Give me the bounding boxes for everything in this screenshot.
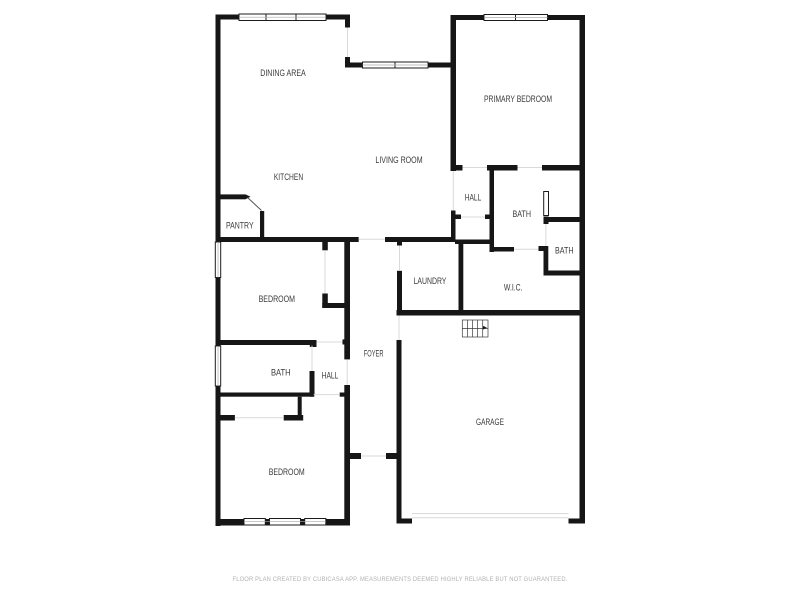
svg-text:LAUNDRY: LAUNDRY [414, 276, 447, 286]
svg-text:BATH: BATH [555, 246, 574, 256]
svg-text:HALL: HALL [465, 192, 482, 202]
svg-text:FLOOR PLAN CREATED BY CUBICASA: FLOOR PLAN CREATED BY CUBICASA APP. MEAS… [233, 576, 568, 583]
svg-text:GARAGE: GARAGE [476, 417, 504, 427]
svg-text:KITCHEN: KITCHEN [274, 172, 303, 182]
svg-text:BATH: BATH [513, 209, 532, 219]
svg-text:FOYER: FOYER [364, 348, 384, 358]
svg-text:PRIMARY BEDROOM: PRIMARY BEDROOM [484, 94, 552, 104]
svg-text:PANTRY: PANTRY [226, 220, 254, 230]
svg-text:BEDROOM: BEDROOM [269, 467, 305, 477]
svg-text:HALL: HALL [322, 370, 339, 380]
svg-text:LIVING ROOM: LIVING ROOM [375, 155, 422, 165]
svg-text:W.I.C.: W.I.C. [504, 282, 523, 292]
svg-text:BATH: BATH [271, 367, 291, 377]
svg-text:BEDROOM: BEDROOM [259, 294, 295, 304]
svg-text:DINING AREA: DINING AREA [260, 68, 306, 78]
